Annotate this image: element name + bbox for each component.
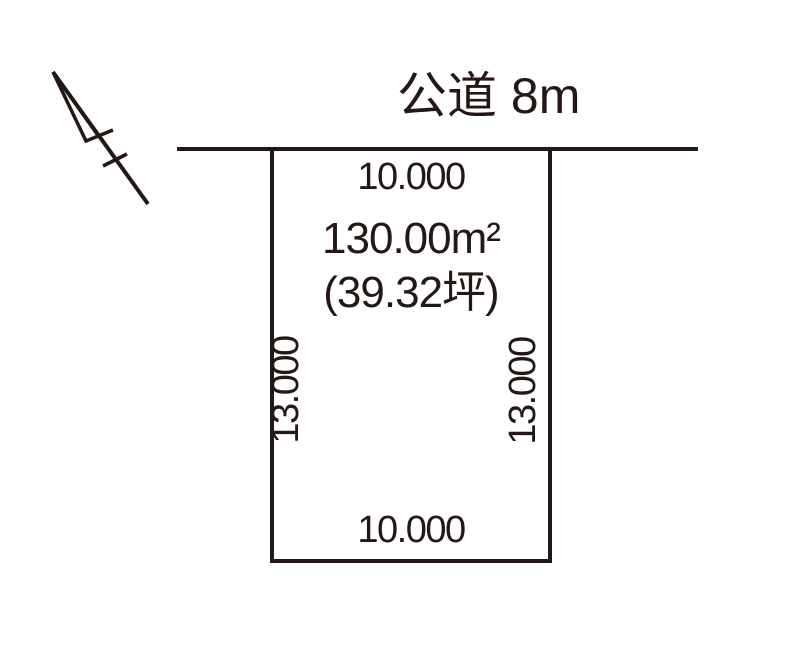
dimension-bottom: 10.000 [270,511,552,549]
dimension-top: 10.000 [270,158,552,196]
north-arrow-icon [40,58,160,218]
area-square-meters: 130.00m² [240,212,582,266]
dimension-left: 13.000 [267,325,307,455]
dimension-right: 13.000 [504,326,544,456]
land-plot-diagram: 公道 8m 10.000 130.00m² (39.32坪) 13.000 13… [0,0,800,650]
area-block: 130.00m² (39.32坪) [240,212,582,319]
area-tsubo: (39.32坪) [240,266,582,320]
road-label: 公道 8m [397,68,580,126]
